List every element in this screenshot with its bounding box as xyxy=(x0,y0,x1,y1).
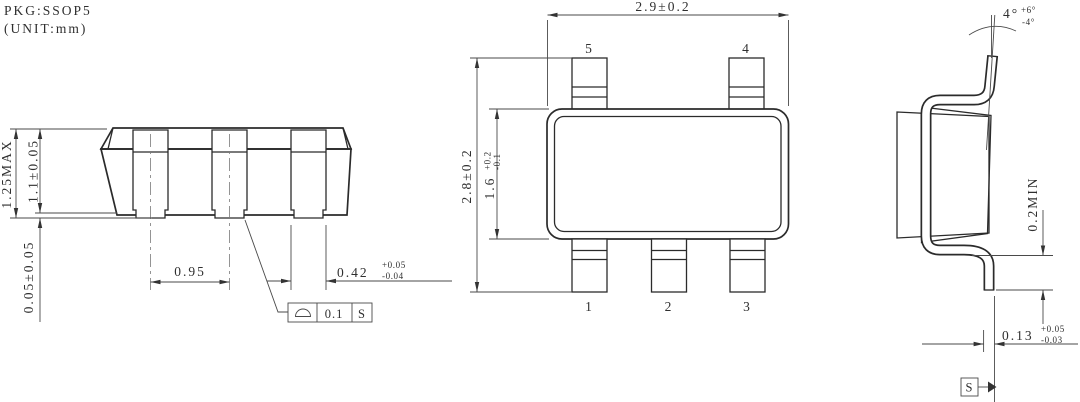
profile-of-surface-icon xyxy=(296,309,311,317)
front-view: 1.25MAX 1.1±0.05 0.05±0.05 0.95 0.42 +0.… xyxy=(0,128,452,322)
datum-triangle-icon xyxy=(988,382,997,393)
dim-body-height-label: 1.1±0.05 xyxy=(26,139,41,203)
fcf-datum-label: S xyxy=(358,307,366,321)
pin-3 xyxy=(730,239,765,292)
dim-standoff-min-label: 0.2MIN xyxy=(1025,176,1040,231)
dim-body-length-tol-minus: -0.1 xyxy=(492,153,502,170)
pin-1 xyxy=(572,239,607,292)
dim-standoff-label: 0.05±0.05 xyxy=(21,241,36,314)
unit-label: (UNIT:mm) xyxy=(4,21,87,36)
dim-body-length-label: 1.6 xyxy=(482,177,497,200)
drawing-svg: PKG:SSOP5 (UNIT:mm) 1.25MAX 1.1±0.05 0. xyxy=(0,0,1080,402)
pin-2-label: 2 xyxy=(665,299,674,314)
dim-lead-width-label: 0.42 xyxy=(337,265,369,280)
pin-5-label: 5 xyxy=(585,41,594,56)
dim-lead-thickness-label: 0.13 xyxy=(1002,328,1034,343)
dim-lead-width-tol-plus: +0.05 xyxy=(382,260,406,270)
pin-2 xyxy=(652,239,687,292)
body-outline-outer xyxy=(547,109,789,239)
fcf-tolerance-label: 0.1 xyxy=(325,307,344,321)
datum-label: S xyxy=(966,381,974,395)
side-view: 4° +6° -4° 0.2MIN 0.13 +0.05 -0.03 S xyxy=(897,5,1078,402)
pin-4 xyxy=(729,58,764,110)
dim-body-length-group: 1.6 +0.2 -0.1 xyxy=(482,151,502,199)
lead-3 xyxy=(291,130,326,218)
top-view: 2.9±0.2 5 4 1 2 3 2.8±0.2 1.6 xyxy=(459,0,789,314)
dim-overall-length-label: 2.8±0.2 xyxy=(459,148,474,203)
pin-5 xyxy=(572,58,607,110)
dim-lead-thickness-tol-minus: -0.03 xyxy=(1041,335,1063,345)
angle-arc xyxy=(969,26,1016,35)
dim-lead-pitch-label: 0.95 xyxy=(174,264,206,279)
lead-angle-tol-plus: +6° xyxy=(1021,5,1036,15)
dim-total-height-label: 1.25MAX xyxy=(0,139,14,208)
pkg-label: PKG:SSOP5 xyxy=(4,3,92,18)
pin-3-label: 3 xyxy=(743,299,752,314)
dim-body-length-tol-plus: +0.2 xyxy=(483,151,493,170)
dim-lead-width-tol-minus: -0.04 xyxy=(382,271,404,281)
pin-1-label: 1 xyxy=(585,299,594,314)
body-side-face xyxy=(897,112,989,238)
body-front-outline xyxy=(922,108,992,243)
drawing-header: PKG:SSOP5 (UNIT:mm) xyxy=(4,3,92,36)
fcf-leader-line xyxy=(245,220,288,312)
dim-body-width-label: 2.9±0.2 xyxy=(635,0,690,14)
dim-lead-thickness-tol-plus: +0.05 xyxy=(1041,324,1065,334)
pin-4-label: 4 xyxy=(742,41,751,56)
lead-angle-label: 4° xyxy=(1003,6,1019,21)
lead-angle-tol-minus: -4° xyxy=(1022,17,1035,27)
package-outline-drawing: PKG:SSOP5 (UNIT:mm) 1.25MAX 1.1±0.05 0. xyxy=(0,0,1080,402)
